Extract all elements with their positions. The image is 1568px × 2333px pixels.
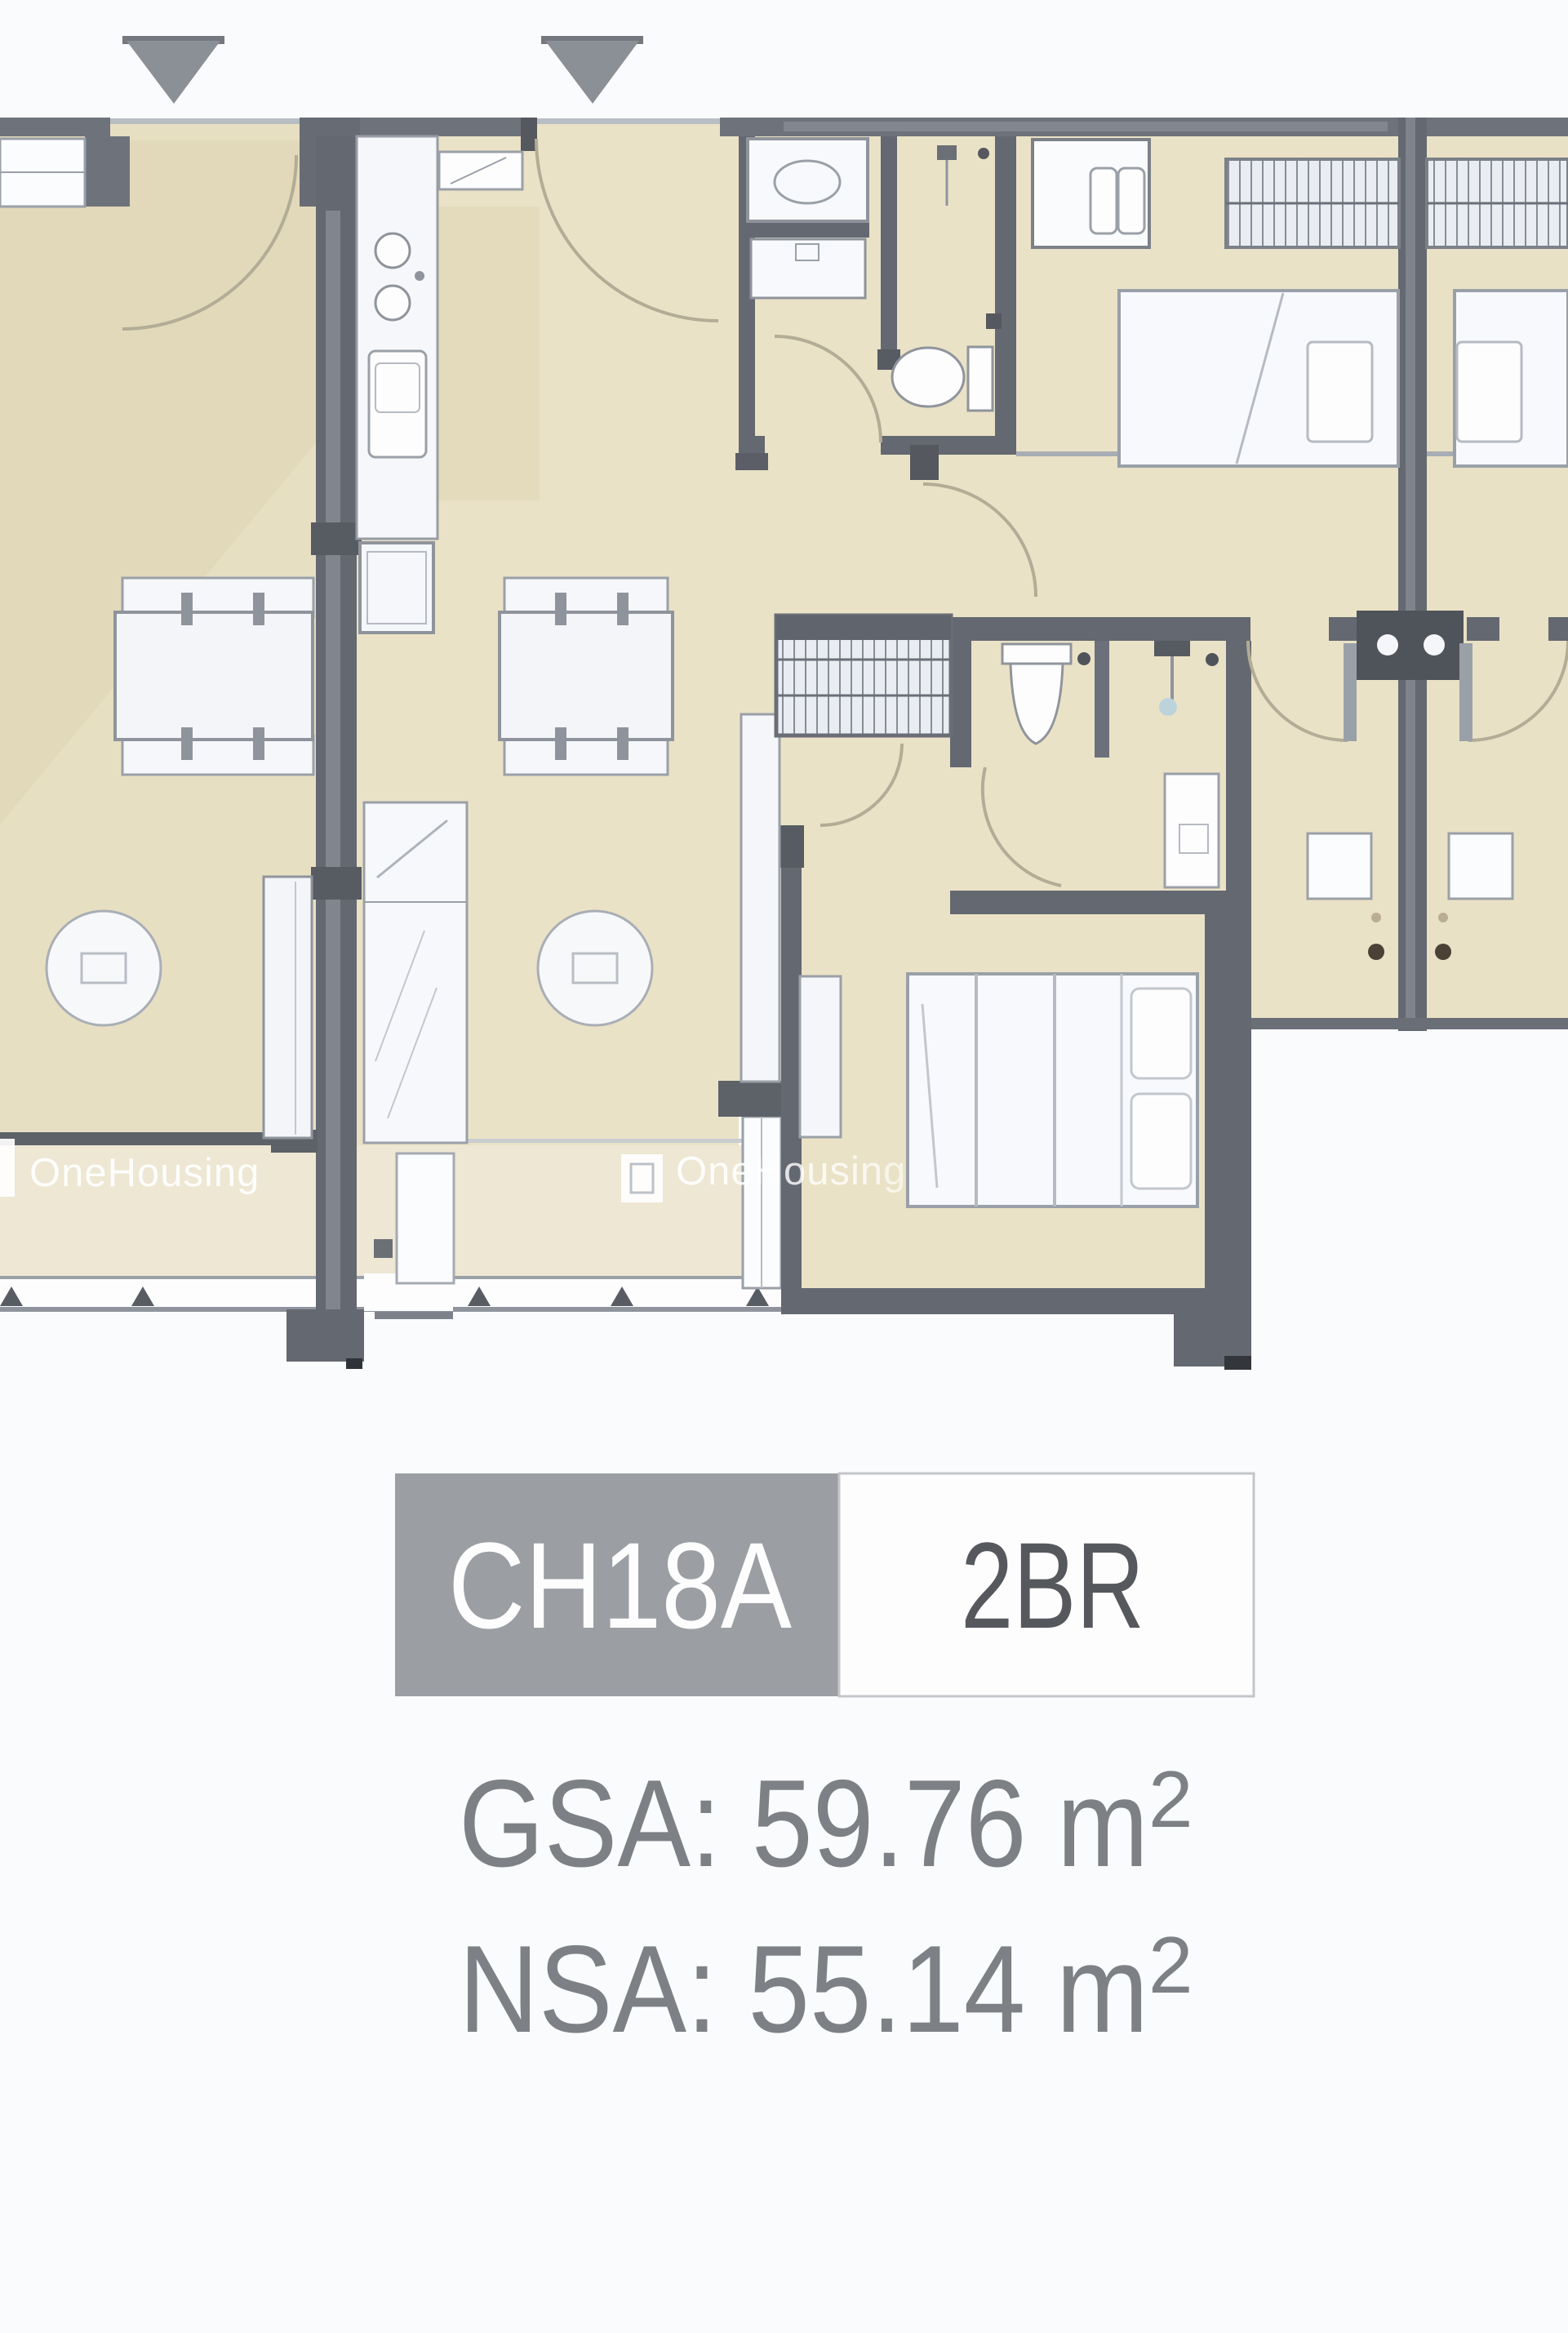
- svg-text:2BR: 2BR: [961, 1517, 1144, 1654]
- svg-text:NSA: 55.14 m2: NSA: 55.14 m2: [459, 1920, 1193, 2059]
- svg-text:CH18A: CH18A: [448, 1517, 792, 1654]
- svg-text:OneHousing: OneHousing: [676, 1149, 906, 1193]
- svg-text:GSA: 59.76 m2: GSA: 59.76 m2: [459, 1754, 1193, 1893]
- svg-text:OneHousing: OneHousing: [29, 1151, 260, 1195]
